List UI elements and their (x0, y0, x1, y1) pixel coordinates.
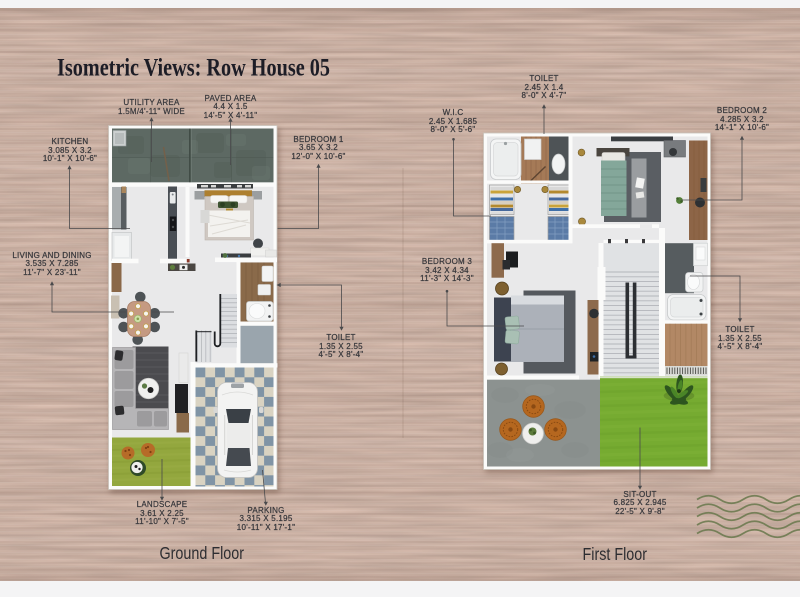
svg-text:Isometric Views: Row House 05: Isometric Views: Row House 05 (57, 53, 330, 82)
svg-text:First Floor: First Floor (583, 544, 648, 564)
svg-text:Ground Floor: Ground Floor (160, 543, 245, 563)
